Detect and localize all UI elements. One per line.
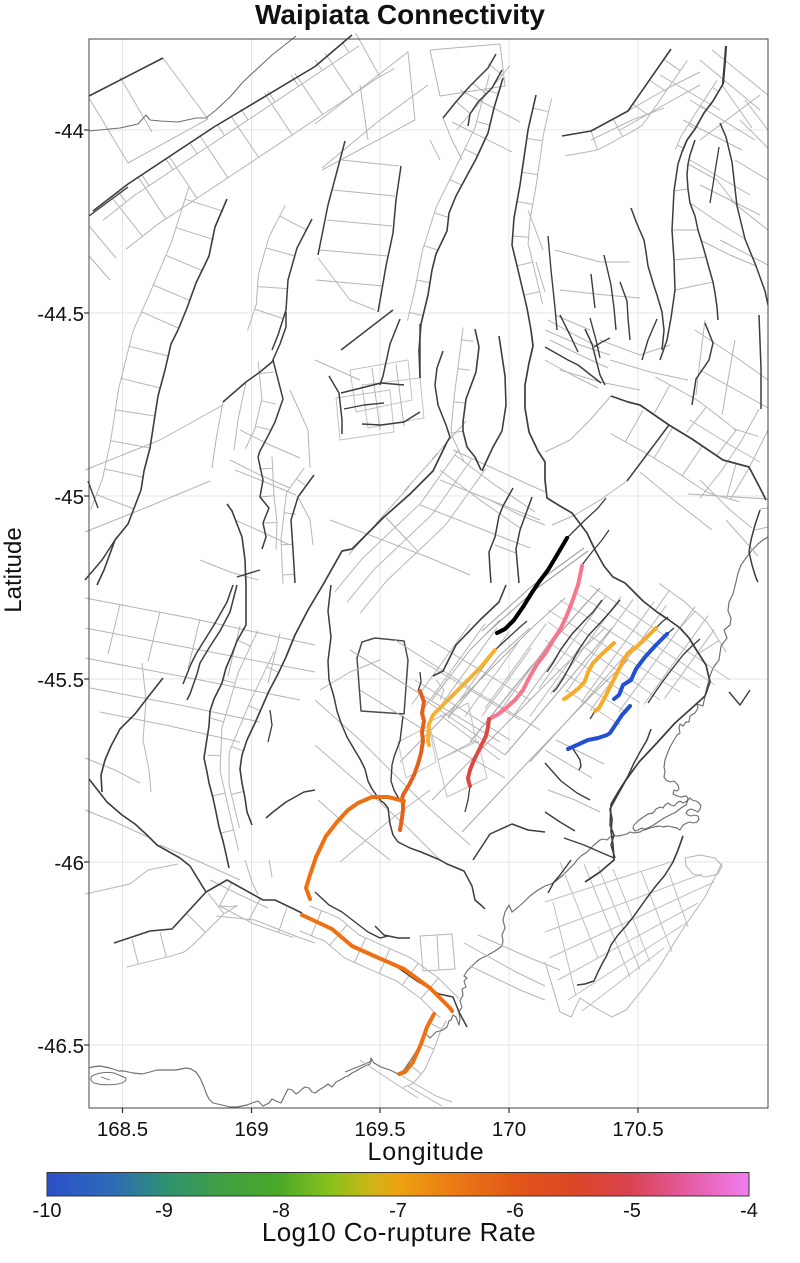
svg-text:Longitude: Longitude	[367, 1138, 484, 1166]
svg-text:170: 170	[492, 1118, 526, 1141]
svg-text:-10: -10	[33, 1200, 62, 1222]
svg-text:170.5: 170.5	[612, 1118, 663, 1141]
svg-text:168.5: 168.5	[97, 1118, 148, 1141]
svg-text:Log10 Co-rupture Rate: Log10 Co-rupture Rate	[262, 1217, 536, 1247]
svg-text:169: 169	[234, 1118, 268, 1141]
svg-text:-5: -5	[623, 1200, 641, 1222]
svg-text:Latitude: Latitude	[0, 527, 27, 612]
svg-text:-44: -44	[54, 120, 84, 143]
svg-text:-45: -45	[54, 486, 84, 509]
svg-text:-46.5: -46.5	[37, 1035, 84, 1058]
svg-text:Waipiata Connectivity: Waipiata Connectivity	[255, 0, 545, 30]
svg-text:-44.5: -44.5	[37, 303, 84, 326]
svg-text:-4: -4	[740, 1200, 758, 1222]
svg-text:-9: -9	[155, 1200, 173, 1222]
svg-text:-45.5: -45.5	[37, 669, 84, 692]
svg-text:-46: -46	[54, 852, 84, 875]
